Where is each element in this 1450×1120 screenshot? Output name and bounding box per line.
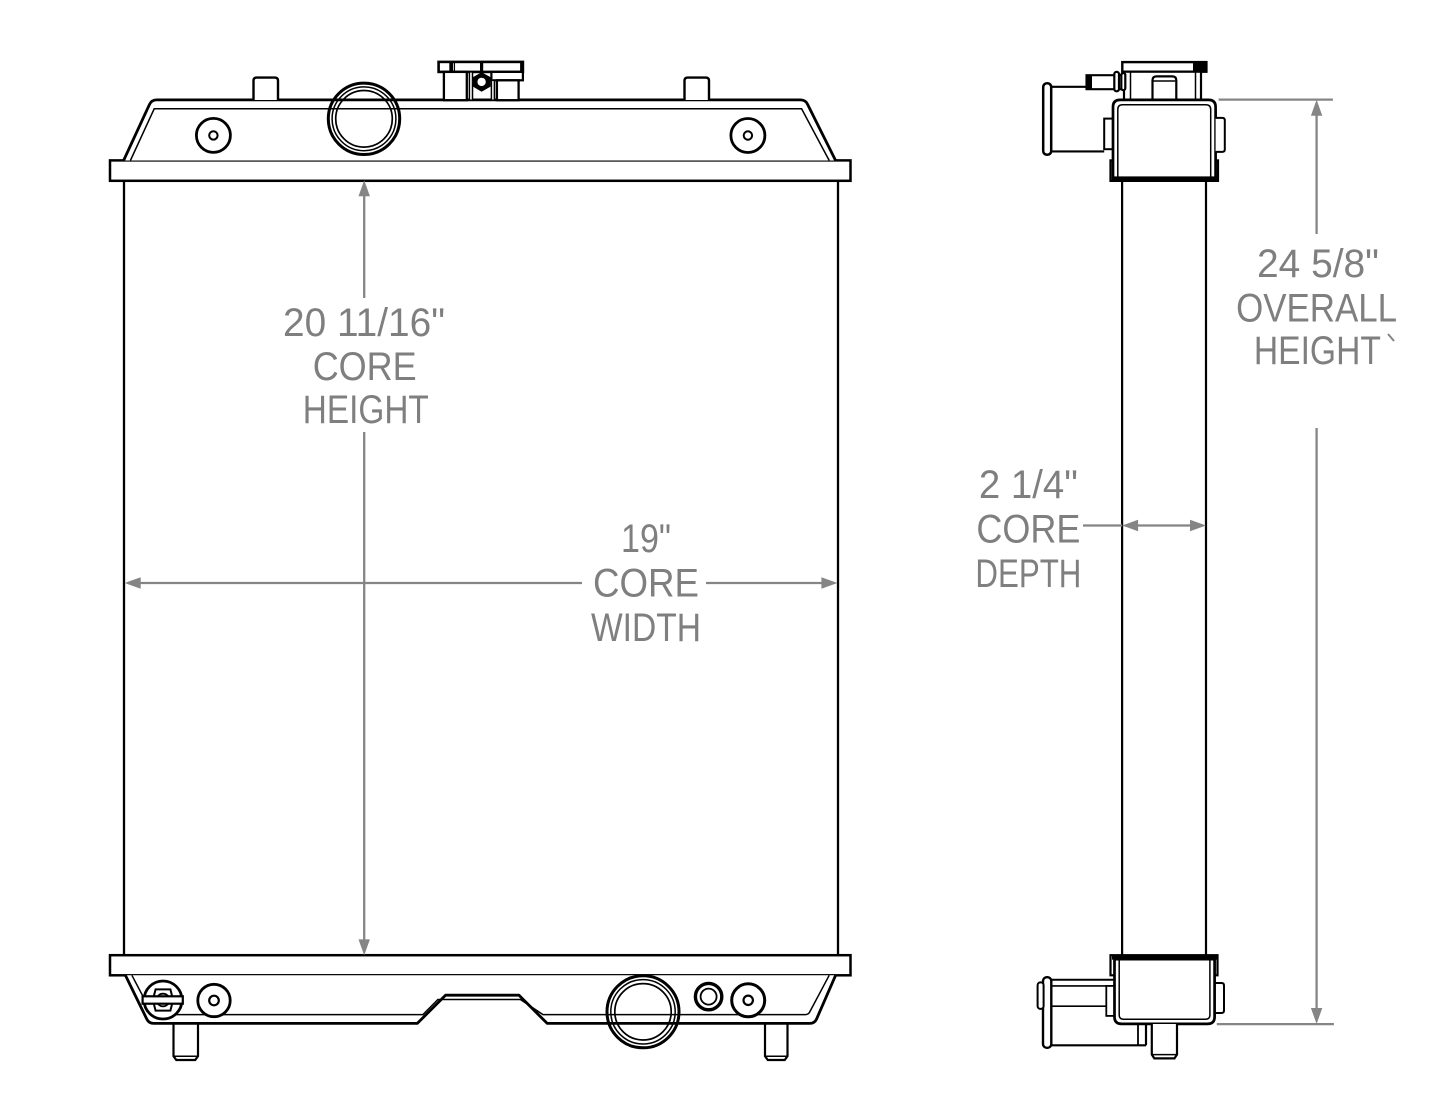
- svg-text:CORE: CORE: [976, 508, 1080, 552]
- svg-text:HEIGHT: HEIGHT: [303, 388, 429, 432]
- svg-text:DEPTH: DEPTH: [975, 552, 1081, 596]
- svg-text:19": 19": [621, 517, 671, 561]
- svg-text:20 11/16": 20 11/16": [283, 301, 445, 345]
- svg-text:HEIGHT: HEIGHT: [1254, 329, 1381, 373]
- svg-text:WIDTH: WIDTH: [591, 606, 701, 650]
- svg-text:24 5/8": 24 5/8": [1257, 242, 1379, 286]
- svg-text:CORE: CORE: [593, 562, 699, 606]
- svg-text:CORE: CORE: [313, 345, 417, 389]
- svg-text:OVERALL: OVERALL: [1236, 287, 1397, 331]
- svg-text:2 1/4": 2 1/4": [979, 463, 1078, 507]
